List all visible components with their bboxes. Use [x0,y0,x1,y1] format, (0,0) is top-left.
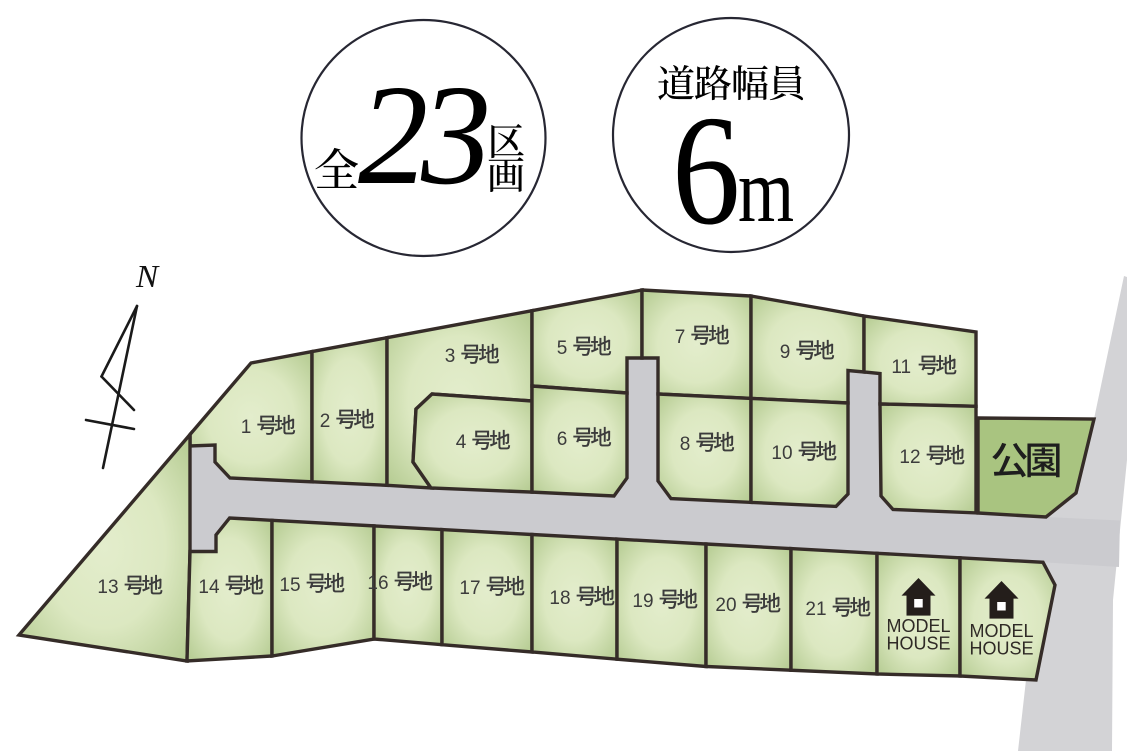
svg-text:7: 7 [675,327,686,348]
svg-text:16: 16 [367,573,388,594]
svg-text:15: 15 [279,575,300,596]
svg-text:6: 6 [557,429,568,450]
svg-text:12: 12 [899,447,920,468]
svg-text:1: 1 [241,417,252,438]
svg-text:14: 14 [198,577,220,598]
svg-text:HOUSE: HOUSE [886,634,950,654]
svg-text:2: 2 [320,411,331,432]
svg-text:4: 4 [456,432,467,453]
svg-text:HOUSE: HOUSE [969,639,1033,659]
svg-text:3: 3 [445,346,456,367]
svg-text:10: 10 [771,443,792,464]
svg-text:11: 11 [891,357,911,378]
svg-text:18: 18 [549,588,570,609]
svg-text:19: 19 [632,591,653,612]
svg-text:21: 21 [805,599,826,620]
svg-text:5: 5 [557,338,568,359]
svg-text:8: 8 [680,434,691,455]
svg-text:20: 20 [715,595,736,616]
svg-text:17: 17 [459,578,480,599]
svg-text:13: 13 [97,577,118,598]
svg-text:9: 9 [780,342,791,363]
